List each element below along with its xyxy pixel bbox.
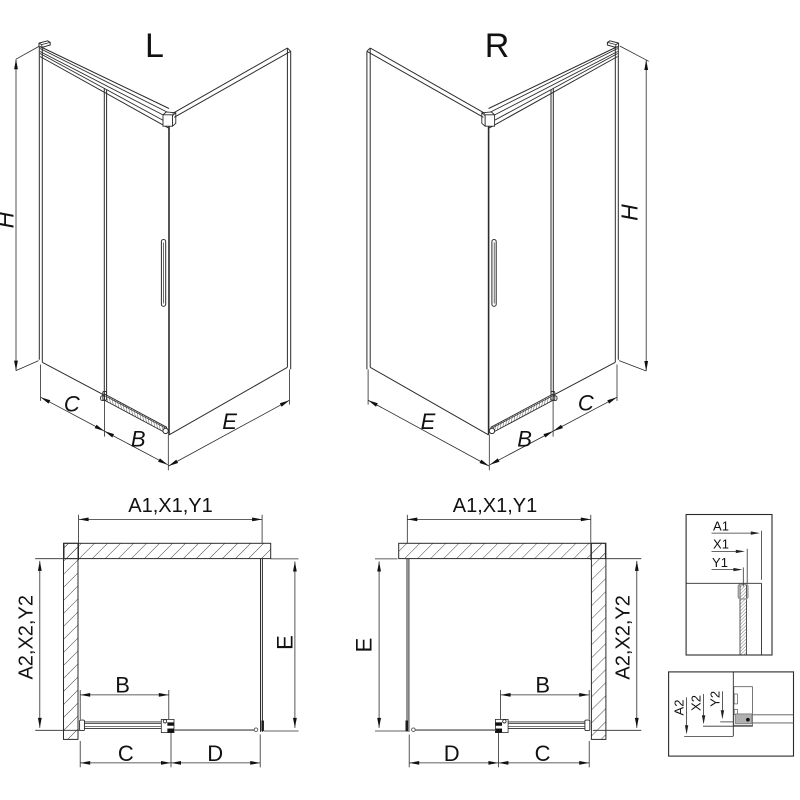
svg-text:B: B (517, 426, 532, 451)
svg-text:B: B (131, 426, 146, 451)
svg-text:L: L (145, 27, 164, 65)
svg-text:C: C (64, 392, 80, 417)
svg-text:A1,X1,Y1: A1,X1,Y1 (128, 495, 213, 517)
svg-text:D: D (207, 741, 223, 766)
svg-text:E: E (421, 409, 436, 434)
svg-text:A1,X1,Y1: A1,X1,Y1 (453, 495, 538, 517)
svg-text:R: R (485, 27, 510, 65)
svg-text:E: E (222, 409, 237, 434)
svg-text:B: B (115, 672, 130, 697)
svg-text:A2,X2,Y2: A2,X2,Y2 (16, 595, 38, 680)
svg-text:X1: X1 (713, 537, 729, 552)
svg-text:H: H (0, 211, 19, 228)
svg-text:Y2: Y2 (707, 691, 722, 707)
svg-text:C: C (535, 741, 551, 766)
svg-text:X2: X2 (689, 695, 704, 711)
svg-text:H: H (617, 204, 643, 221)
svg-text:A2: A2 (672, 700, 687, 716)
svg-text:E: E (351, 638, 376, 653)
svg-text:C: C (118, 741, 134, 766)
svg-text:C: C (578, 391, 594, 416)
svg-text:E: E (273, 635, 298, 650)
svg-text:D: D (444, 741, 460, 766)
svg-text:A1: A1 (713, 519, 729, 534)
svg-text:Y1: Y1 (712, 555, 728, 570)
svg-text:B: B (535, 672, 550, 697)
svg-text:A2,X2,Y2: A2,X2,Y2 (612, 595, 634, 680)
